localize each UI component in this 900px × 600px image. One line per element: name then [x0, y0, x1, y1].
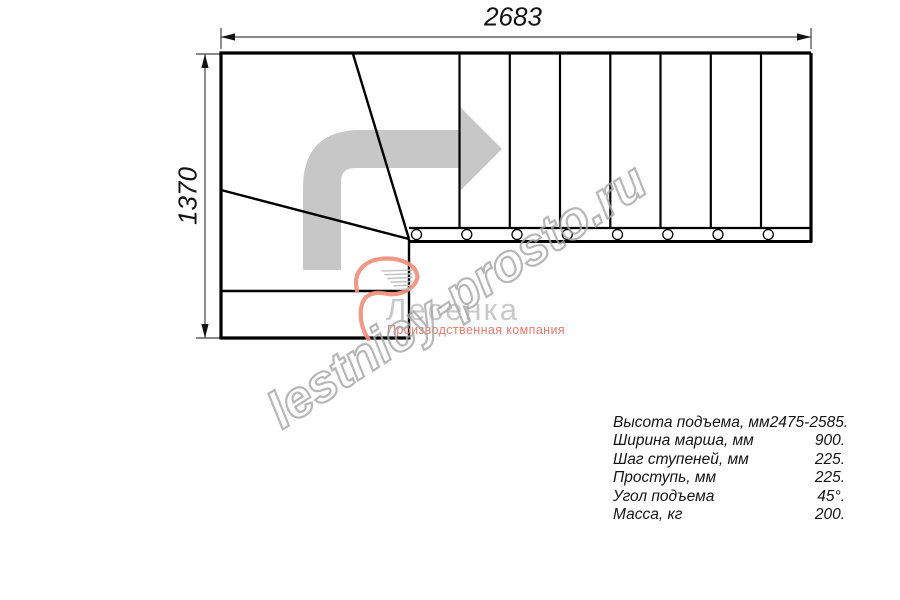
spec-value: 200. [815, 506, 845, 524]
spec-label: Шаг ступеней, мм [613, 451, 749, 469]
spec-value: 45°. [817, 488, 845, 506]
dimension-height-label: 1370 [173, 167, 204, 225]
stringer-strip [409, 228, 812, 242]
spec-label: Угол подъема [613, 488, 714, 506]
spec-value: 225. [815, 469, 845, 487]
spec-row: Шаг ступеней, мм 225. [613, 451, 845, 469]
spec-row: Ширина марша, мм 900. [613, 432, 845, 450]
dimension-width-label: 2683 [484, 2, 542, 33]
spec-label: Проступь, мм [613, 469, 716, 487]
spec-value: 2475-2585. [770, 414, 848, 432]
spec-list: Высота подъема, мм 2475-2585. Ширина мар… [613, 414, 845, 524]
spec-value: 900. [815, 432, 845, 450]
spec-label: Масса, кг [613, 506, 682, 524]
tread-divider-lines [460, 54, 762, 228]
direction-arrow-icon [303, 107, 502, 270]
spec-value: 225. [815, 451, 845, 469]
spec-label: Ширина марша, мм [613, 432, 754, 450]
spec-row: Масса, кг 200. [613, 506, 845, 524]
spec-row: Угол подъема 45°. [613, 488, 845, 506]
spec-label: Высота подъема, мм [613, 414, 770, 432]
spec-row: Проступь, мм 225. [613, 469, 845, 487]
logo-tagline: Производственная компания [387, 323, 565, 337]
spec-row: Высота подъема, мм 2475-2585. [613, 414, 845, 432]
baluster-circles [412, 230, 774, 240]
blueprint-canvas: 2683 1370 Лесенка Производственная компа… [0, 0, 900, 600]
